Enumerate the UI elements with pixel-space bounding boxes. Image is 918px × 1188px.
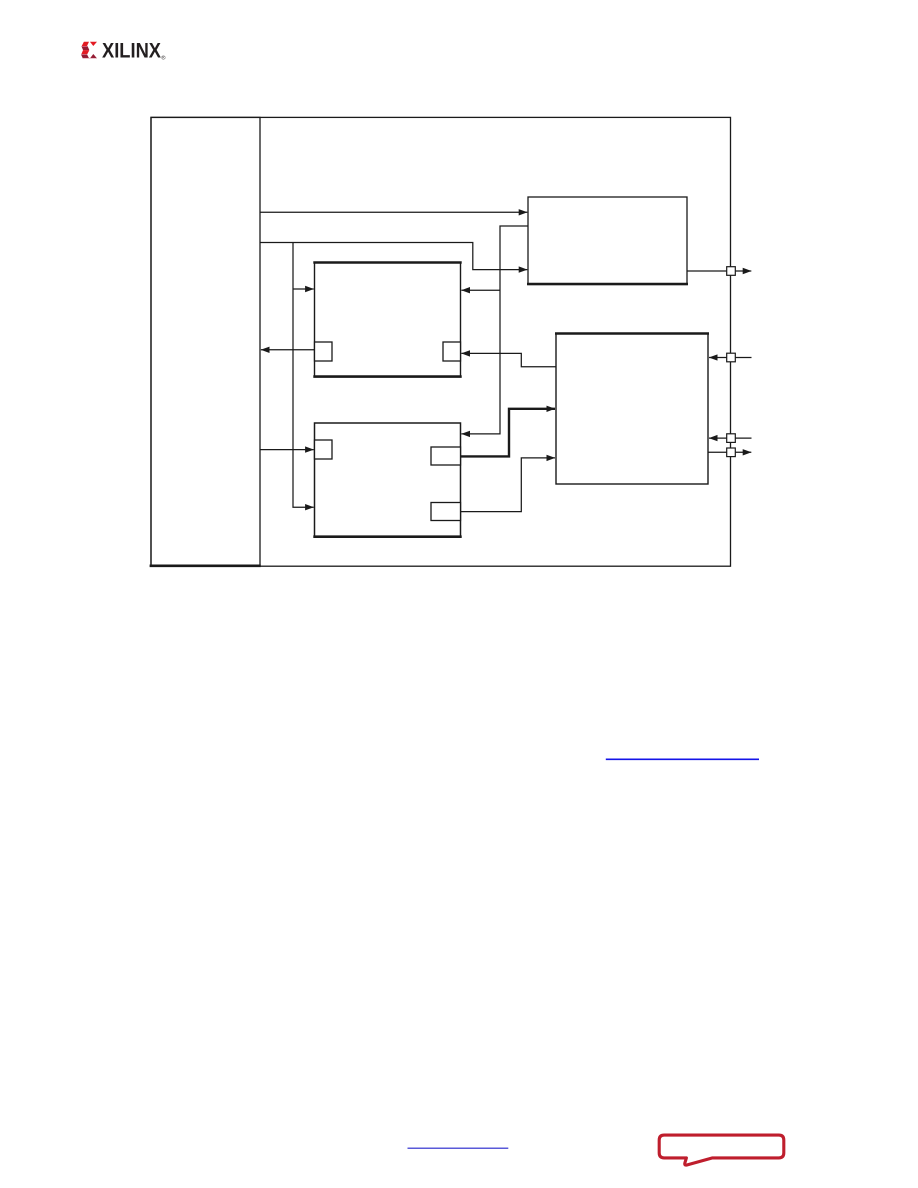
svg-text:XILINX: XILINX [102, 39, 162, 63]
svg-text:®: ® [161, 54, 166, 61]
